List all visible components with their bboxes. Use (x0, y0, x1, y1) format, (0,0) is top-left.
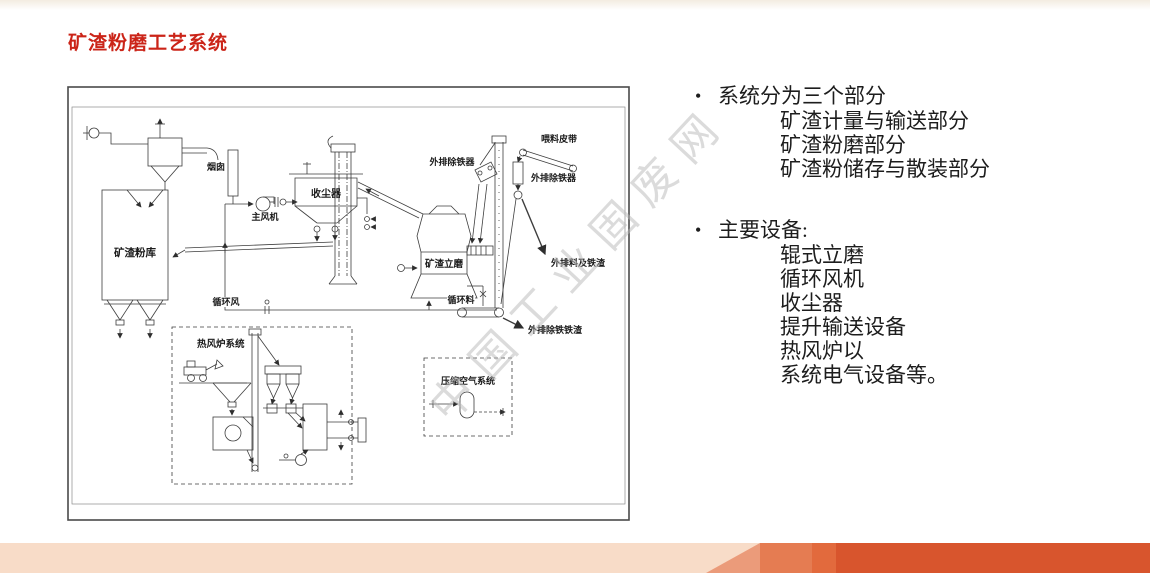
circulating-material-label: 循环料 (447, 294, 474, 306)
bullet-dot: • (690, 218, 718, 243)
compressed-air-system (424, 358, 512, 436)
iron-remover-left-label: 外排除铁器 (428, 156, 475, 168)
chimney-label: 烟囱 (207, 161, 225, 173)
bullet-sub-item: 矿渣计量与输送部分 (690, 109, 1060, 133)
bullet-item: • 主要设备: (690, 218, 1060, 243)
bullet-sub-item: 收尘器 (690, 291, 1060, 315)
slag-powder-silo (83, 119, 218, 338)
bullet-label: 系统分为三个部分 (718, 84, 886, 109)
dust-collector-label: 收尘器 (311, 187, 342, 200)
hot-air-furnace-system (172, 327, 366, 484)
main-fan-label: 主风机 (251, 211, 278, 223)
process-flow-diagram: 矿渣粉库 烟囱 主风机 收尘器 外排除铁器 喂料皮带 外排除铁器 外排料及铁渣 … (67, 86, 630, 521)
footer-decoration (0, 543, 1150, 573)
bullet-group-main-equipment: • 主要设备: 辊式立磨 循环风机 收尘器 提升输送设备 热风炉以 系统电气设备… (690, 218, 1060, 387)
vertical-mill (398, 206, 487, 310)
bullet-sub-item: 提升输送设备 (690, 315, 1060, 339)
bullet-group-system-parts: • 系统分为三个部分 矿渣计量与输送部分 矿渣粉磨部分 矿渣粉储存与散装部分 (690, 84, 1060, 181)
air-slide-conveyor (173, 242, 333, 257)
footer-main-bar (836, 543, 1150, 573)
bullet-label: 主要设备: (718, 218, 808, 243)
external-iron-slag-label: 外排除铁铁渣 (527, 324, 583, 336)
feed-belt-label: 喂料皮带 (541, 133, 577, 145)
top-gradient-band (0, 0, 1150, 10)
chimney (228, 150, 238, 204)
vertical-mill-label: 矿渣立磨 (425, 258, 464, 270)
bullet-sub-item: 矿渣粉储存与散装部分 (690, 157, 1060, 181)
compressed-air-system-label: 压缩空气系统 (441, 375, 495, 387)
iron-remover-left-device (467, 162, 497, 255)
main-fan (225, 197, 297, 211)
hot-air-furnace-system-label: 热风炉系统 (197, 338, 245, 350)
slide-title: 矿渣粉磨工艺系统 (68, 28, 228, 55)
circulating-air-label: 循环风 (212, 296, 239, 308)
footer-band-2 (812, 543, 836, 573)
feed-belt (520, 149, 577, 172)
bullet-sub-item: 系统电气设备等。 (690, 363, 1060, 387)
dust-collector (289, 162, 423, 241)
discharge-iron-slag-label: 外排料及铁渣 (550, 257, 606, 269)
silo-label: 矿渣粉库 (114, 246, 156, 259)
bullet-dot: • (690, 84, 718, 109)
external-iron-slag-arrow (503, 318, 523, 328)
bullet-list: • 系统分为三个部分 矿渣计量与输送部分 矿渣粉磨部分 矿渣粉储存与散装部分 •… (690, 84, 1060, 387)
mill-bucket-elevator (480, 136, 506, 308)
bullet-item: • 系统分为三个部分 (690, 84, 1060, 109)
footer-band-1 (760, 543, 812, 573)
bullet-sub-item: 循环风机 (690, 267, 1060, 291)
bullet-sub-item: 热风炉以 (690, 339, 1060, 363)
bullet-sub-item: 矿渣粉磨部分 (690, 133, 1060, 157)
circulating-material-conveyor (458, 308, 504, 317)
bullet-sub-item: 辊式立磨 (690, 243, 1060, 267)
iron-remover-right-label: 外排除铁器 (530, 172, 577, 184)
